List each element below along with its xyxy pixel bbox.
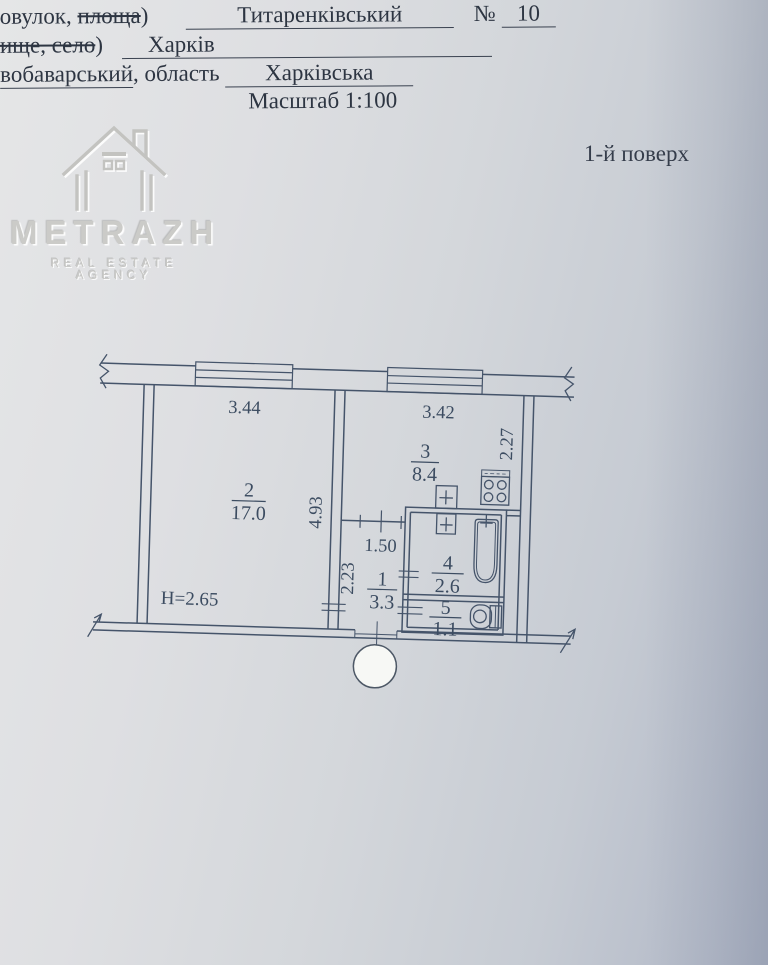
room-3-area: 8.4	[412, 463, 438, 486]
room-3-label: 3 8.4	[410, 440, 439, 486]
window-icon	[387, 368, 483, 395]
street-type-label: овулок, площа)	[0, 3, 148, 29]
floor-plan-drawing: 3.44 3.42 2.27 4.93 1.50 2.23 H=2.65 2 1…	[73, 345, 593, 710]
kitchen-sink-icon	[436, 486, 458, 509]
agency-subtitle: REAL ESTATE AGENCY	[10, 258, 218, 282]
room-4-area: 2.6	[434, 575, 460, 598]
house-number: № 10	[474, 0, 556, 27]
wall-bottom-outer	[93, 630, 571, 644]
street-name-value: Титаренківський	[186, 1, 454, 30]
number-sign: №	[474, 1, 496, 26]
room-1-number: 1	[377, 568, 388, 590]
gas-stove-icon	[481, 470, 510, 505]
house-number-value: 10	[501, 0, 555, 27]
dim-window-left-label: 3.44	[228, 398, 261, 419]
toilet-icon	[470, 605, 502, 629]
wall-left	[137, 384, 154, 623]
room-5-area: 1.1	[432, 618, 458, 641]
dim-window-right-label: 3.42	[422, 403, 455, 424]
room-2-area: 17.0	[231, 502, 267, 525]
form-line-district: вобаварський, область Харківська	[0, 59, 413, 89]
street-type-struck: площа	[77, 3, 140, 28]
room-4-number: 4	[443, 552, 454, 574]
bathtub-icon	[473, 514, 498, 583]
city-value: Харків	[122, 30, 492, 59]
room-1-label: 1 3.3	[366, 568, 397, 614]
washbasin-icon	[436, 514, 456, 535]
form-line-street: овулок, площа)	[0, 3, 148, 30]
room-5-label: 5 1.1	[429, 596, 462, 640]
agency-name: METRAZH	[10, 214, 218, 252]
region-value: Харківська	[225, 59, 413, 87]
settlement-type-struck: ище, село	[0, 32, 95, 58]
room-3-number: 3	[420, 441, 431, 463]
ceiling-height-label: H=2.65	[160, 588, 218, 611]
wall-right	[517, 396, 534, 643]
scale-label: Масштаб 1:100	[195, 87, 450, 115]
room-2-number: 2	[244, 479, 255, 501]
room-5-number: 5	[440, 597, 451, 619]
district-value: вобаварський	[0, 61, 133, 89]
dim-kitchen-side-label: 2.27	[497, 428, 518, 461]
bathroom-block-walls	[402, 507, 521, 635]
wall-top-inner	[100, 383, 574, 397]
wall-top-outer	[101, 363, 575, 377]
scanned-document-page: { "header": { "line1_label": "овулок, ",…	[0, 0, 768, 965]
house-logo-icon	[39, 112, 189, 212]
form-line-city: ище, село)	[0, 32, 103, 59]
room-1-area: 3.3	[369, 591, 395, 614]
dim-hall-width-label: 1.50	[364, 536, 397, 557]
floor-label: 1-й поверх	[584, 141, 689, 167]
agency-logo: METRAZH REAL ESTATE AGENCY	[10, 112, 218, 282]
room-4-label: 4 2.6	[431, 552, 464, 598]
room-2-label: 2 17.0	[231, 479, 267, 525]
form-header: овулок, площа) Титаренківський № 10 ище,…	[0, 0, 600, 117]
window-icon	[195, 362, 293, 389]
dim-hall-side-label: 2.23	[338, 562, 359, 595]
dim-room2-side-label: 4.93	[306, 496, 327, 529]
whiteout-stamp-circle	[353, 644, 397, 688]
region-label: , область	[133, 60, 220, 86]
wall-hall-kitchen	[341, 520, 405, 522]
wall-bottom-inner	[93, 622, 571, 636]
